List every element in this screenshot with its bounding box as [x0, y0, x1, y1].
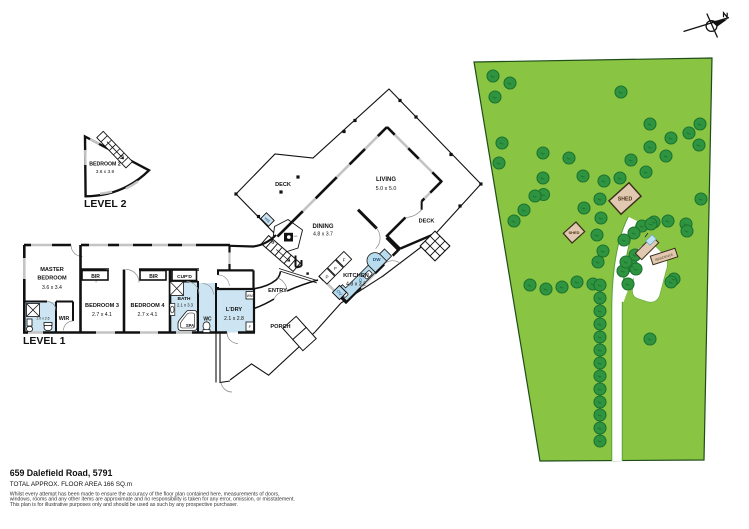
svg-text:5.0 x 5.0: 5.0 x 5.0: [376, 186, 397, 192]
svg-text:659 Dalefield Road, 5791: 659 Dalefield Road, 5791: [10, 468, 113, 478]
svg-text:3.6 x 3.9: 3.6 x 3.9: [96, 169, 115, 175]
svg-text:LEVEL 2: LEVEL 2: [84, 198, 127, 210]
svg-text:BATH: BATH: [178, 296, 192, 302]
svg-text:BEDROOM 2: BEDROOM 2: [89, 162, 121, 168]
svg-text:F: F: [343, 257, 346, 262]
svg-text:SHED: SHED: [618, 197, 633, 203]
svg-text:This plan is for illustrative: This plan is for illustrative purposes o…: [10, 502, 238, 508]
svg-text:L'DRY: L'DRY: [226, 307, 243, 313]
svg-text:DECK: DECK: [275, 182, 291, 188]
svg-text:2.0 x 2.6: 2.0 x 2.6: [36, 317, 49, 321]
svg-text:DECK: DECK: [419, 219, 435, 225]
svg-text:BEDROOM: BEDROOM: [37, 276, 67, 282]
svg-text:BEDROOM 3: BEDROOM 3: [85, 303, 119, 309]
svg-text:BIR: BIR: [149, 274, 158, 280]
svg-text:4.8 x 3.2: 4.8 x 3.2: [346, 282, 366, 288]
svg-text:KITCHEN: KITCHEN: [343, 273, 369, 279]
svg-text:P: P: [325, 274, 328, 279]
svg-text:ENTRY: ENTRY: [268, 288, 287, 294]
svg-text:LEVEL 1: LEVEL 1: [23, 335, 66, 347]
svg-text:TOTAL APPROX. FLOOR AREA 166 S: TOTAL APPROX. FLOOR AREA 166 SQ.m: [10, 481, 132, 488]
svg-text:2.1 x 2.8: 2.1 x 2.8: [224, 316, 244, 322]
svg-text:LIVING: LIVING: [376, 177, 396, 183]
svg-text:WC: WC: [203, 317, 212, 323]
svg-text:WIR: WIR: [59, 316, 70, 322]
svg-text:4.8 x 3.7: 4.8 x 3.7: [313, 232, 333, 238]
svg-text:2.7 x 4.1: 2.7 x 4.1: [92, 312, 112, 318]
svg-text:WM: WM: [247, 294, 253, 298]
svg-text:SPA: SPA: [186, 323, 194, 328]
svg-text:3.6 x 3.4: 3.6 x 3.4: [42, 285, 62, 291]
svg-text:BIR: BIR: [91, 274, 100, 280]
svg-text:2.7 x 4.1: 2.7 x 4.1: [138, 312, 158, 318]
svg-text:2.1 x 3.3: 2.1 x 3.3: [177, 303, 194, 308]
svg-text:SHED: SHED: [568, 230, 579, 235]
svg-text:DW: DW: [373, 257, 381, 262]
svg-text:PORCH: PORCH: [270, 324, 290, 330]
svg-text:CUP'D: CUP'D: [177, 274, 192, 280]
svg-text:MASTER: MASTER: [40, 267, 64, 273]
svg-text:BEDROOM 4: BEDROOM 4: [131, 303, 166, 309]
svg-text:F: F: [334, 266, 337, 271]
svg-text:DINING: DINING: [313, 224, 334, 230]
